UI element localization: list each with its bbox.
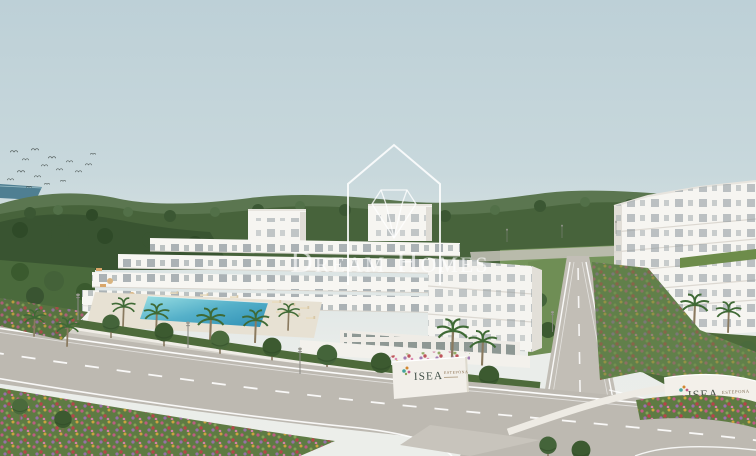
birds (7, 149, 96, 188)
rendered-aerial-view: ISEA ESTEPONA ISEA ESTEPONA FASE I Dream… (0, 0, 756, 456)
entrance-sign-subtitle: ESTEPONA (444, 369, 469, 375)
scenery: ISEA ESTEPONA ISEA ESTEPONA FASE I (0, 0, 756, 456)
entrance-sign-brand: ISEA (414, 370, 444, 383)
entrance-sign: ISEA ESTEPONA (390, 352, 470, 399)
